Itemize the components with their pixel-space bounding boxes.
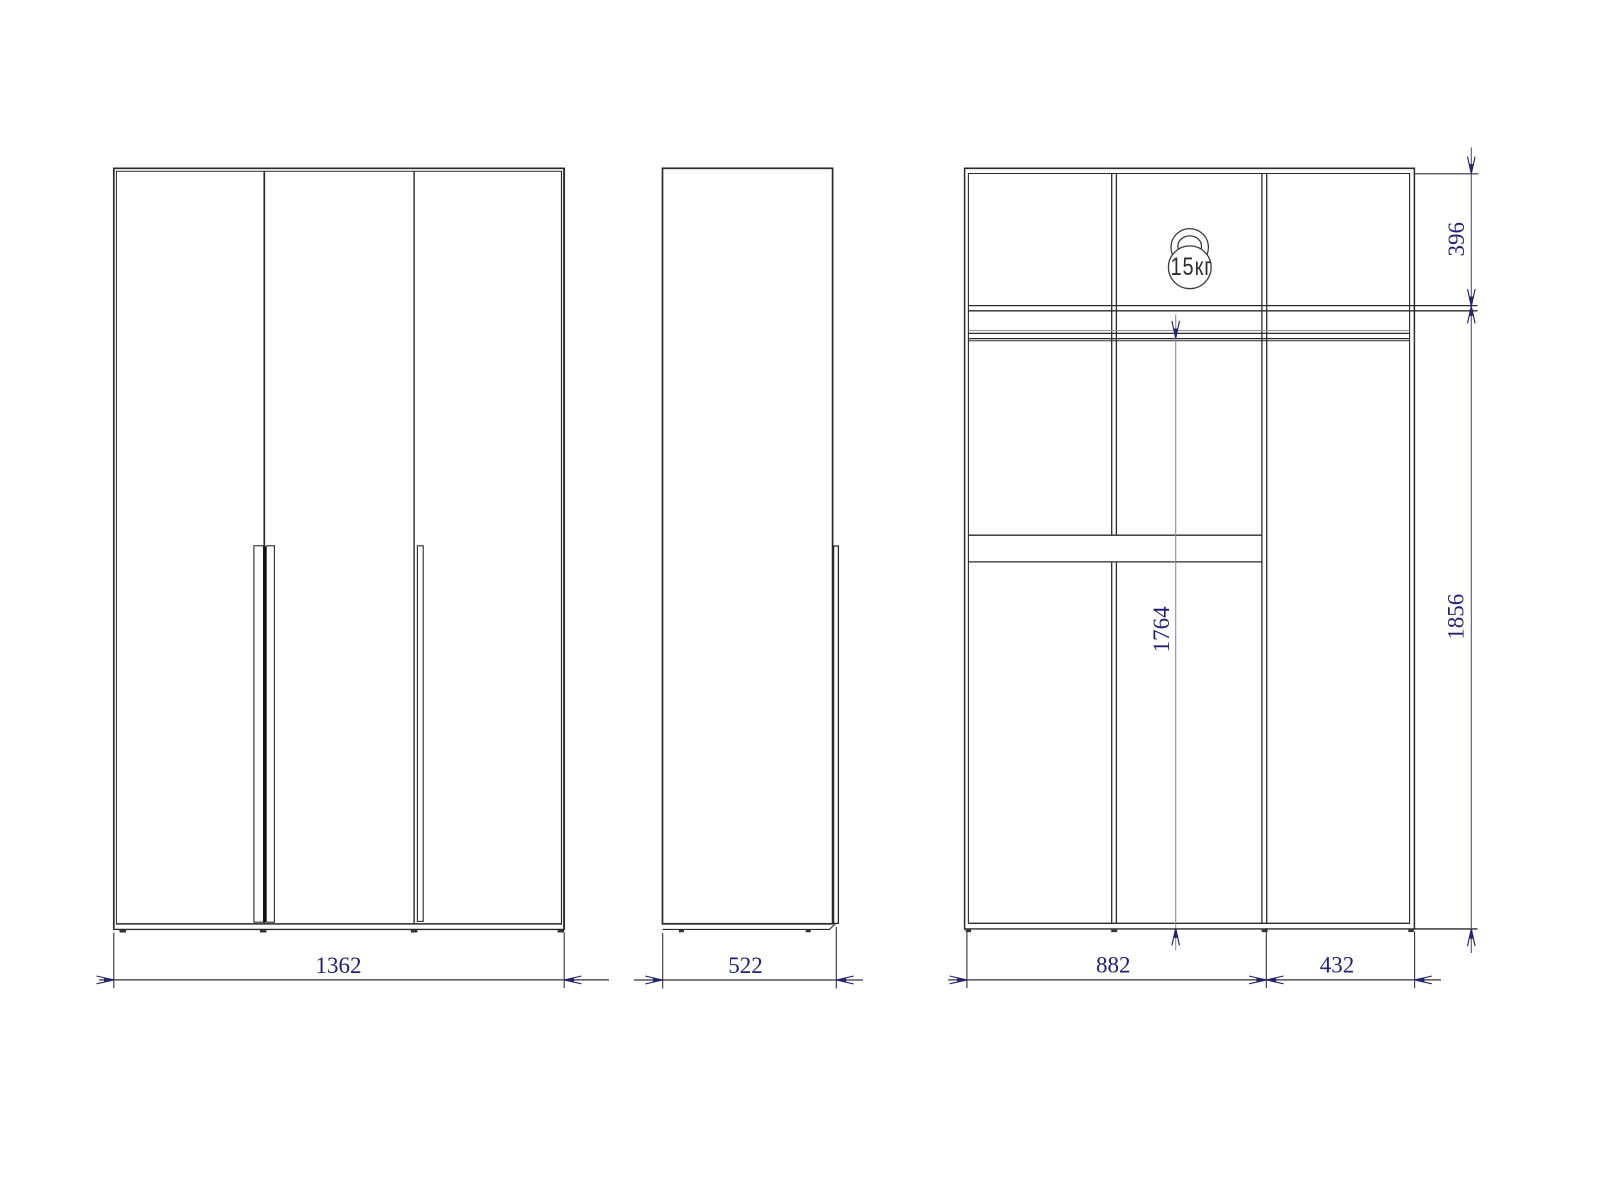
svg-text:1764: 1764 [1149, 606, 1174, 653]
svg-text:1362: 1362 [316, 953, 362, 978]
svg-text:396: 396 [1444, 222, 1469, 256]
svg-text:1856: 1856 [1444, 594, 1469, 640]
svg-text:882: 882 [1096, 953, 1131, 978]
svg-text:432: 432 [1320, 953, 1355, 978]
svg-text:522: 522 [728, 953, 763, 978]
svg-text:15кг: 15кг [1170, 253, 1212, 281]
